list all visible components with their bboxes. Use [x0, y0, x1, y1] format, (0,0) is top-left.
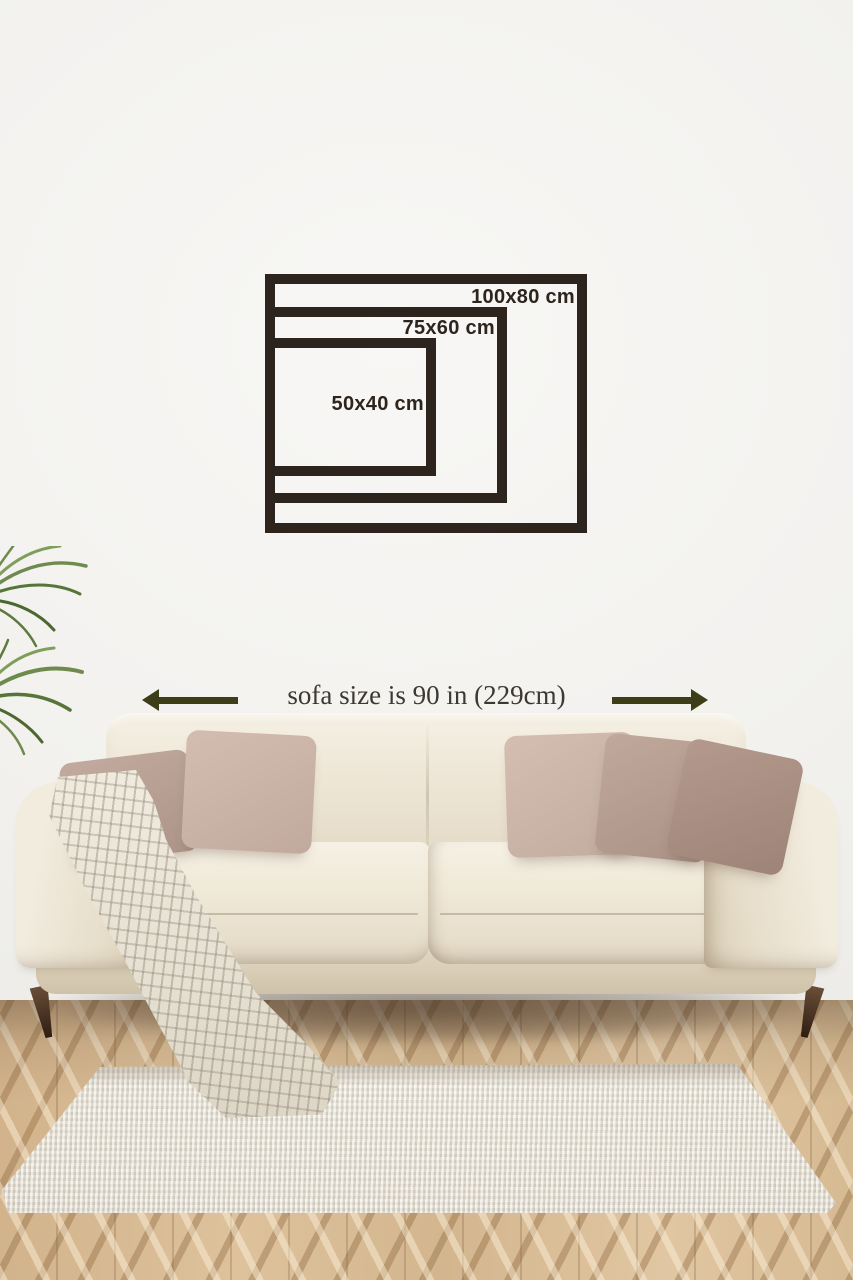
plant-leaves — [0, 546, 124, 778]
plant-frond-cluster-top — [0, 546, 86, 646]
sofa — [0, 0, 853, 1280]
throw-pillow-5 — [665, 737, 805, 877]
throw-pillow-2 — [181, 730, 317, 855]
plant-frond-cluster-bottom — [0, 640, 82, 754]
product-size-guide-photo: 100x80 cm 75x60 cm 50x40 cm sofa size is… — [0, 0, 853, 1280]
